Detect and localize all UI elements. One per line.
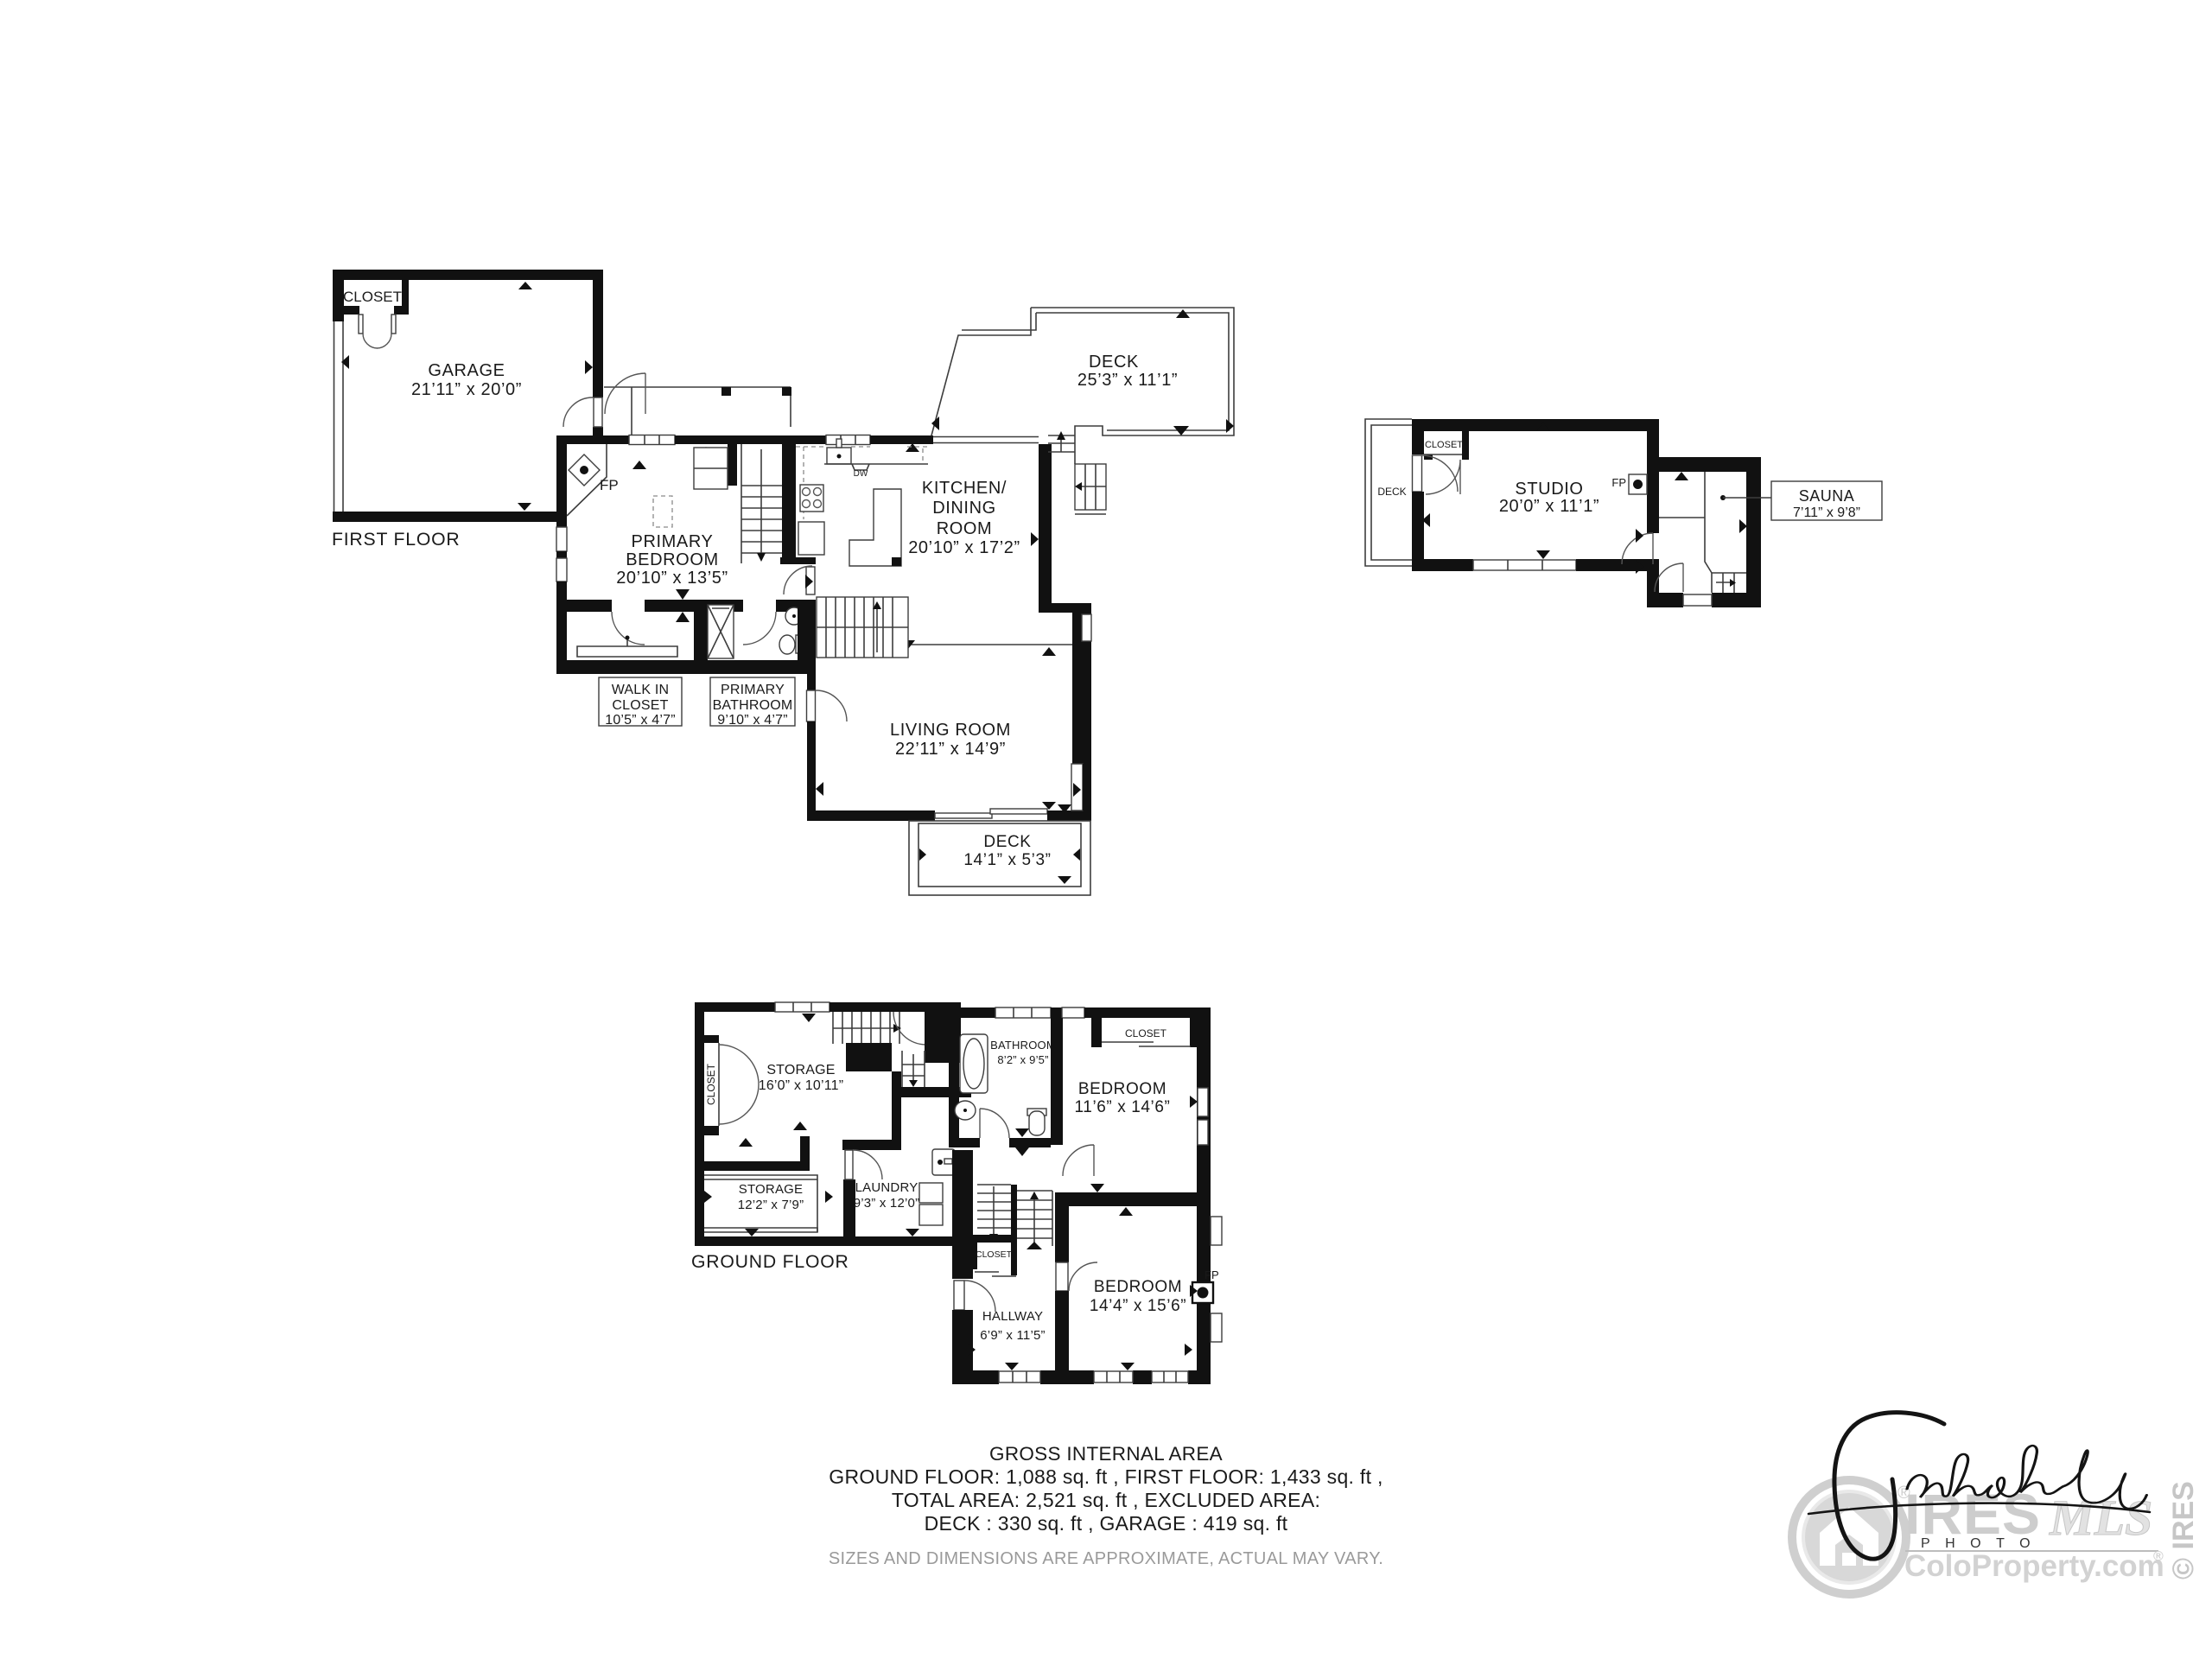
- svg-text:GROUND FLOOR: GROUND FLOOR: [691, 1252, 849, 1272]
- svg-text:PRIMARY: PRIMARY: [632, 532, 714, 551]
- svg-text:10’5” x 4’7”: 10’5” x 4’7”: [605, 713, 676, 728]
- svg-text:11’6” x 14’6”: 11’6” x 14’6”: [1075, 1098, 1171, 1116]
- svg-text:9’3” x 12’0”: 9’3” x 12’0”: [854, 1196, 920, 1211]
- svg-text:ColoProperty.com: ColoProperty.com: [1904, 1549, 2164, 1583]
- svg-text:9’10” x 4’7”: 9’10” x 4’7”: [717, 713, 788, 728]
- svg-text:20’0” x 11’1”: 20’0” x 11’1”: [1499, 497, 1599, 516]
- svg-text:LIVING ROOM: LIVING ROOM: [890, 721, 1011, 740]
- svg-text:FP: FP: [1205, 1268, 1219, 1281]
- svg-text:20’10” x 13’5”: 20’10” x 13’5”: [616, 569, 728, 588]
- svg-text:STORAGE: STORAGE: [739, 1182, 803, 1197]
- svg-text:21’11” x 20’0”: 21’11” x 20’0”: [411, 380, 522, 399]
- svg-text:MLS: MLS: [2049, 1490, 2152, 1546]
- svg-text:22’11” x 14’9”: 22’11” x 14’9”: [895, 740, 1006, 759]
- svg-text:DW: DW: [854, 469, 868, 479]
- svg-text:CLOSET: CLOSET: [705, 1063, 717, 1105]
- svg-text:FP: FP: [1611, 476, 1626, 489]
- svg-text:20’10” x 17’2”: 20’10” x 17’2”: [908, 538, 1020, 557]
- svg-text:GARAGE: GARAGE: [428, 361, 505, 380]
- svg-text:CLOSET: CLOSET: [1425, 440, 1463, 450]
- svg-text:STUDIO: STUDIO: [1515, 480, 1583, 499]
- svg-text:TOTAL AREA: 2,521 sq. ft , EXC: TOTAL AREA: 2,521 sq. ft , EXCLUDED AREA…: [892, 1489, 1320, 1511]
- svg-text:DECK: DECK: [1089, 353, 1139, 372]
- svg-text:14’4” x 15’6”: 14’4” x 15’6”: [1090, 1297, 1186, 1315]
- svg-text:DECK: DECK: [983, 833, 1031, 851]
- svg-text:HALLWAY: HALLWAY: [982, 1309, 1043, 1324]
- svg-text:12’2” x 7’9”: 12’2” x 7’9”: [738, 1198, 804, 1212]
- svg-text:BEDROOM: BEDROOM: [626, 550, 719, 569]
- svg-text:SIZES AND DIMENSIONS ARE APPRO: SIZES AND DIMENSIONS ARE APPROXIMATE, AC…: [829, 1549, 1383, 1568]
- svg-text:®: ®: [2153, 1549, 2164, 1564]
- svg-text:PRIMARY: PRIMARY: [721, 683, 785, 697]
- svg-text:LAUNDRY: LAUNDRY: [855, 1180, 918, 1195]
- svg-text:BEDROOM: BEDROOM: [1078, 1080, 1166, 1098]
- svg-text:FIRST FLOOR: FIRST FLOOR: [332, 530, 461, 550]
- svg-text:FP: FP: [600, 477, 619, 493]
- svg-text:GROUND FLOOR: 1,088 sq. ft , F: GROUND FLOOR: 1,088 sq. ft , FIRST FLOOR…: [829, 1465, 1382, 1488]
- svg-text:25’3” x 11’1”: 25’3” x 11’1”: [1077, 371, 1178, 390]
- svg-text:CLOSET: CLOSET: [612, 698, 668, 713]
- svg-text:DINING: DINING: [932, 499, 996, 518]
- svg-text:CLOSET: CLOSET: [976, 1249, 1013, 1260]
- svg-text:SAUNA: SAUNA: [1799, 487, 1855, 505]
- svg-text:WALK IN: WALK IN: [612, 683, 670, 697]
- svg-text:STORAGE: STORAGE: [766, 1063, 835, 1077]
- svg-text:8’2” x 9’5”: 8’2” x 9’5”: [997, 1053, 1048, 1066]
- svg-text:DECK : 330 sq. ft , GARAGE : 4: DECK : 330 sq. ft , GARAGE : 419 sq. ft: [925, 1512, 1288, 1535]
- svg-text:KITCHEN/: KITCHEN/: [922, 479, 1007, 498]
- svg-text:7’11” x 9’8”: 7’11” x 9’8”: [1793, 505, 1860, 520]
- svg-text:GROSS INTERNAL AREA: GROSS INTERNAL AREA: [989, 1443, 1223, 1465]
- svg-text:CLOSET: CLOSET: [1125, 1027, 1167, 1039]
- svg-text:BATHROOM: BATHROOM: [990, 1039, 1056, 1052]
- svg-text:ROOM: ROOM: [937, 519, 993, 538]
- svg-text:© IRES: © IRES: [2167, 1481, 2200, 1580]
- svg-text:BEDROOM: BEDROOM: [1094, 1278, 1182, 1296]
- svg-text:BATHROOM: BATHROOM: [713, 698, 793, 713]
- svg-text:CLOSET: CLOSET: [343, 289, 402, 305]
- svg-text:DECK: DECK: [1377, 486, 1406, 498]
- svg-text:14’1” x 5’3”: 14’1” x 5’3”: [963, 851, 1051, 869]
- svg-text:16’0” x 10’11”: 16’0” x 10’11”: [759, 1078, 844, 1093]
- svg-text:6’9” x 11’5”: 6’9” x 11’5”: [980, 1328, 1046, 1343]
